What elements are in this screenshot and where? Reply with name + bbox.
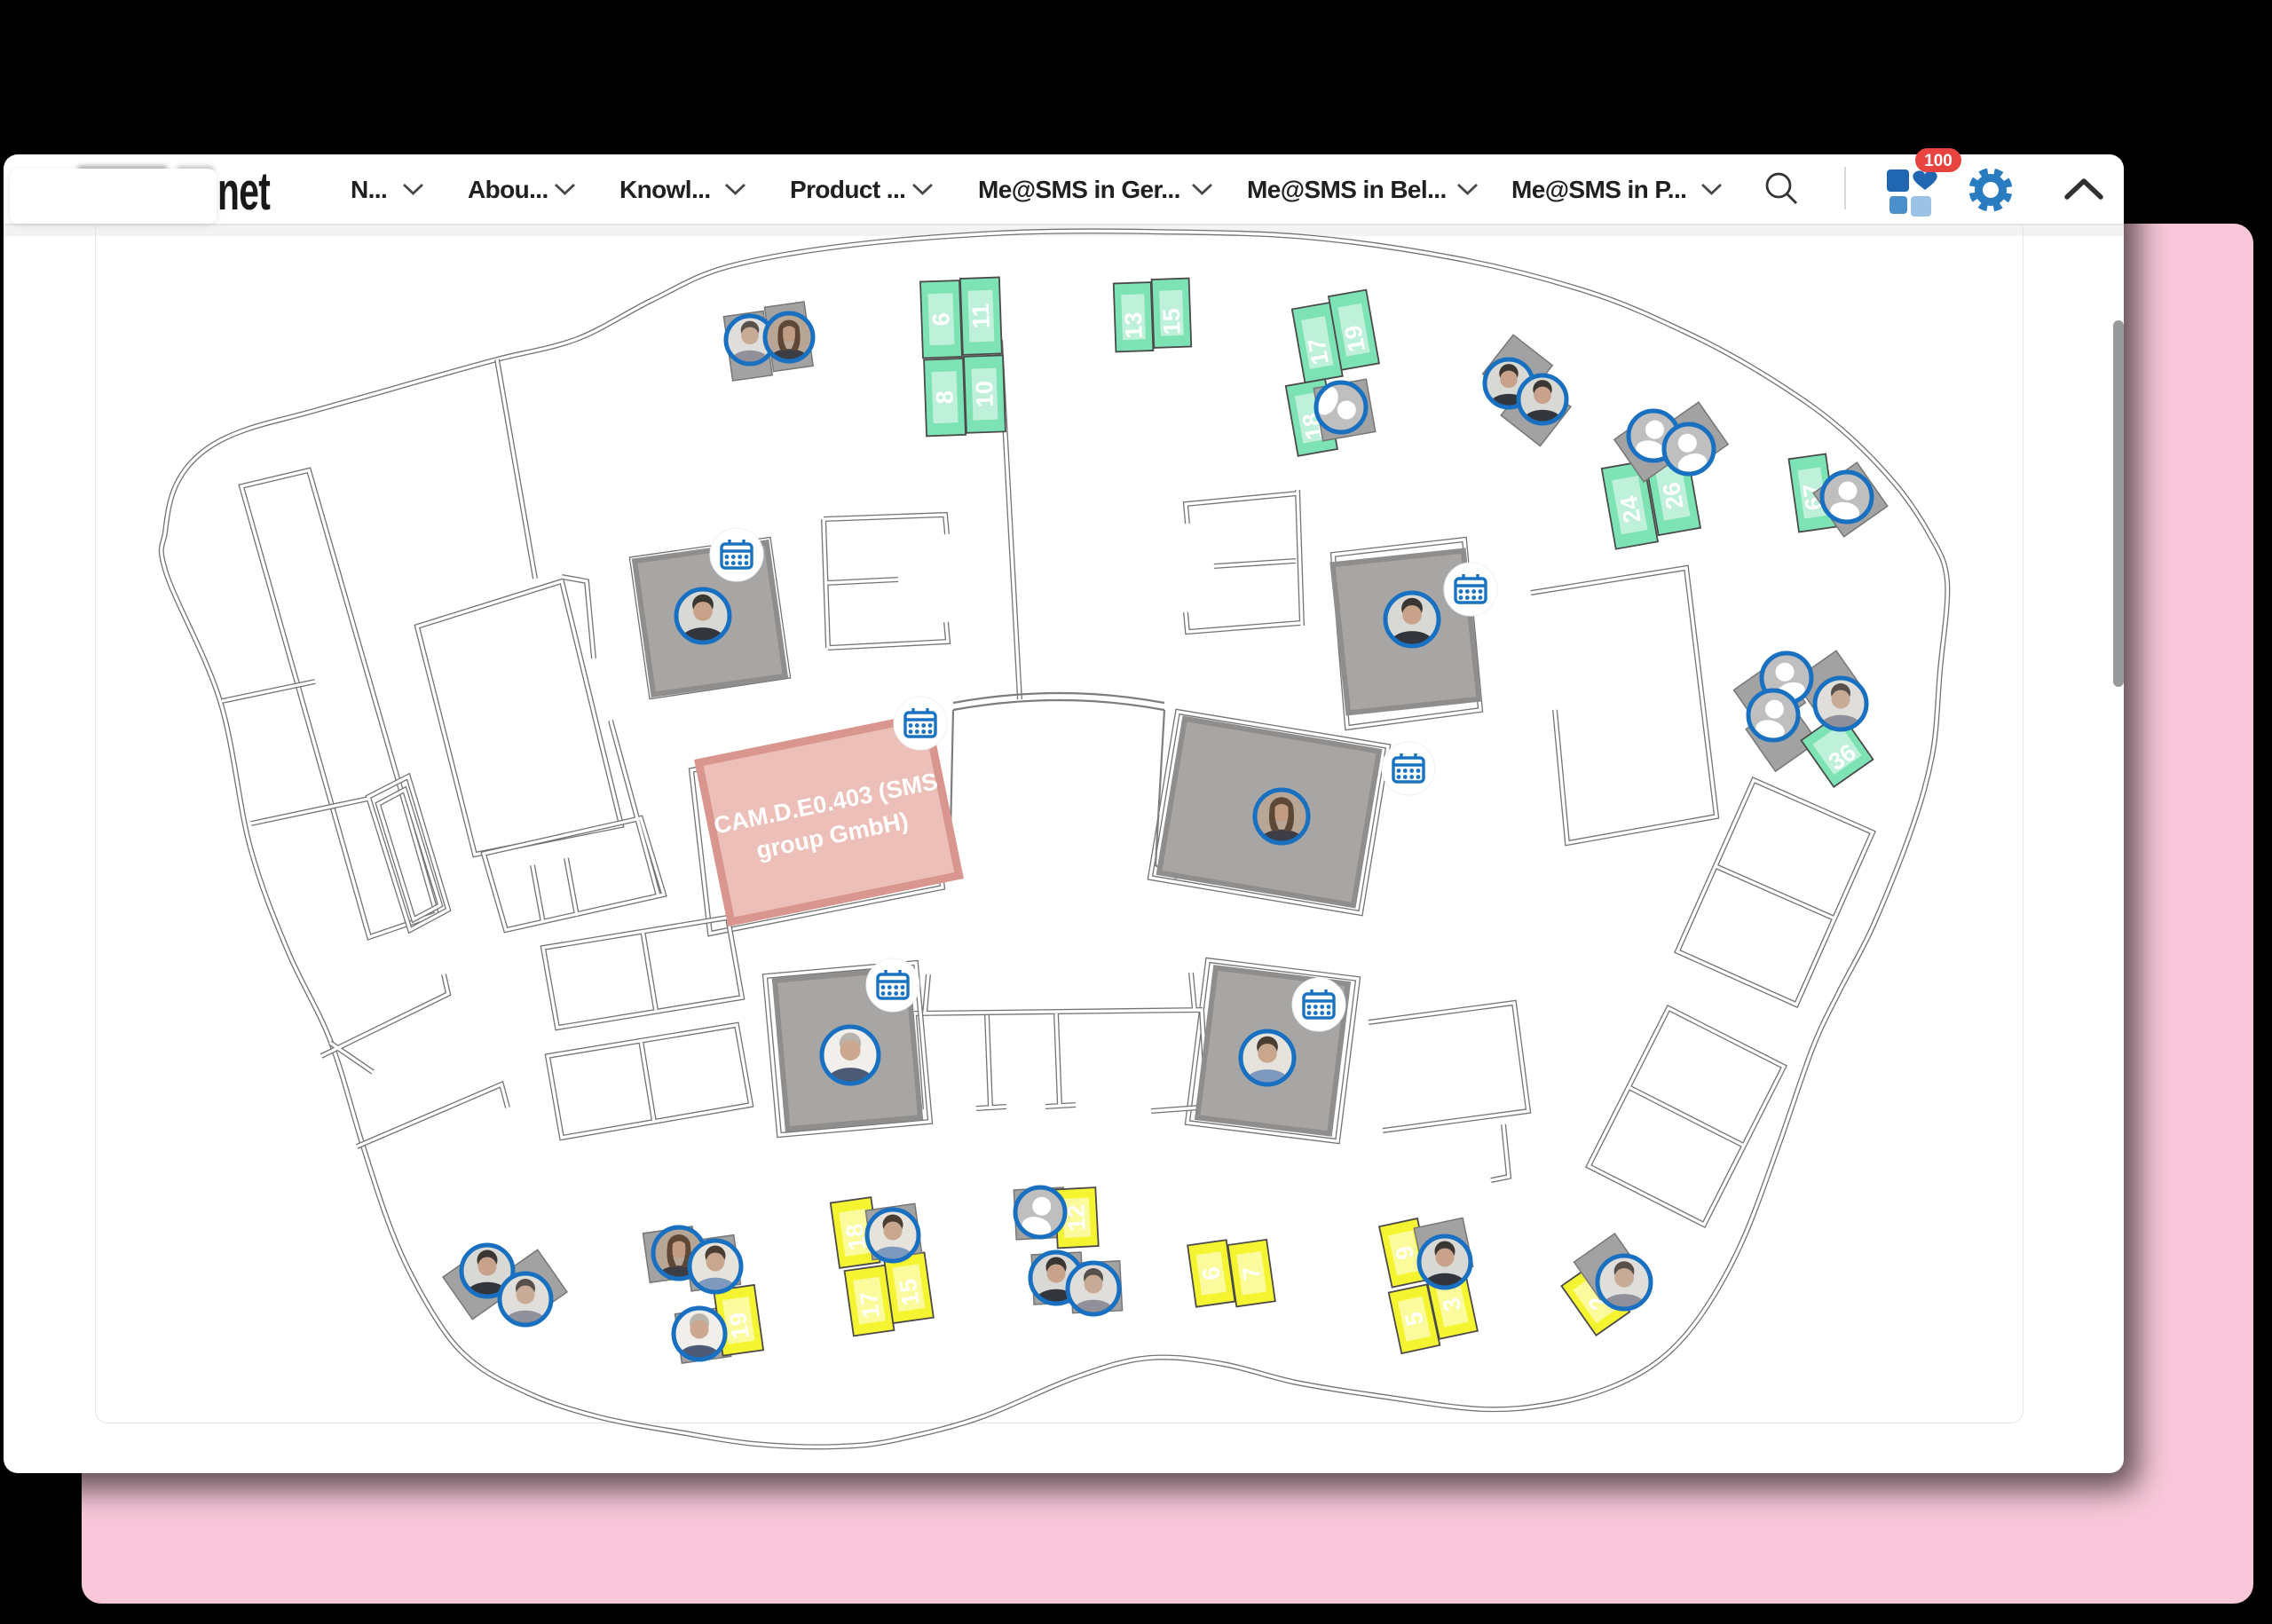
svg-text:8: 8 xyxy=(931,390,958,405)
svg-text:15: 15 xyxy=(1158,308,1186,335)
svg-text:11: 11 xyxy=(967,303,995,329)
svg-text:17: 17 xyxy=(1303,336,1334,367)
svg-text:26: 26 xyxy=(1658,480,1689,511)
svg-text:6: 6 xyxy=(927,312,955,327)
svg-text:10: 10 xyxy=(971,381,998,408)
svg-text:17: 17 xyxy=(855,1290,885,1320)
svg-text:24: 24 xyxy=(1615,494,1646,525)
svg-text:19: 19 xyxy=(724,1311,754,1341)
svg-text:15: 15 xyxy=(895,1277,925,1307)
svg-text:19: 19 xyxy=(1339,323,1370,354)
svg-text:13: 13 xyxy=(1120,311,1148,339)
